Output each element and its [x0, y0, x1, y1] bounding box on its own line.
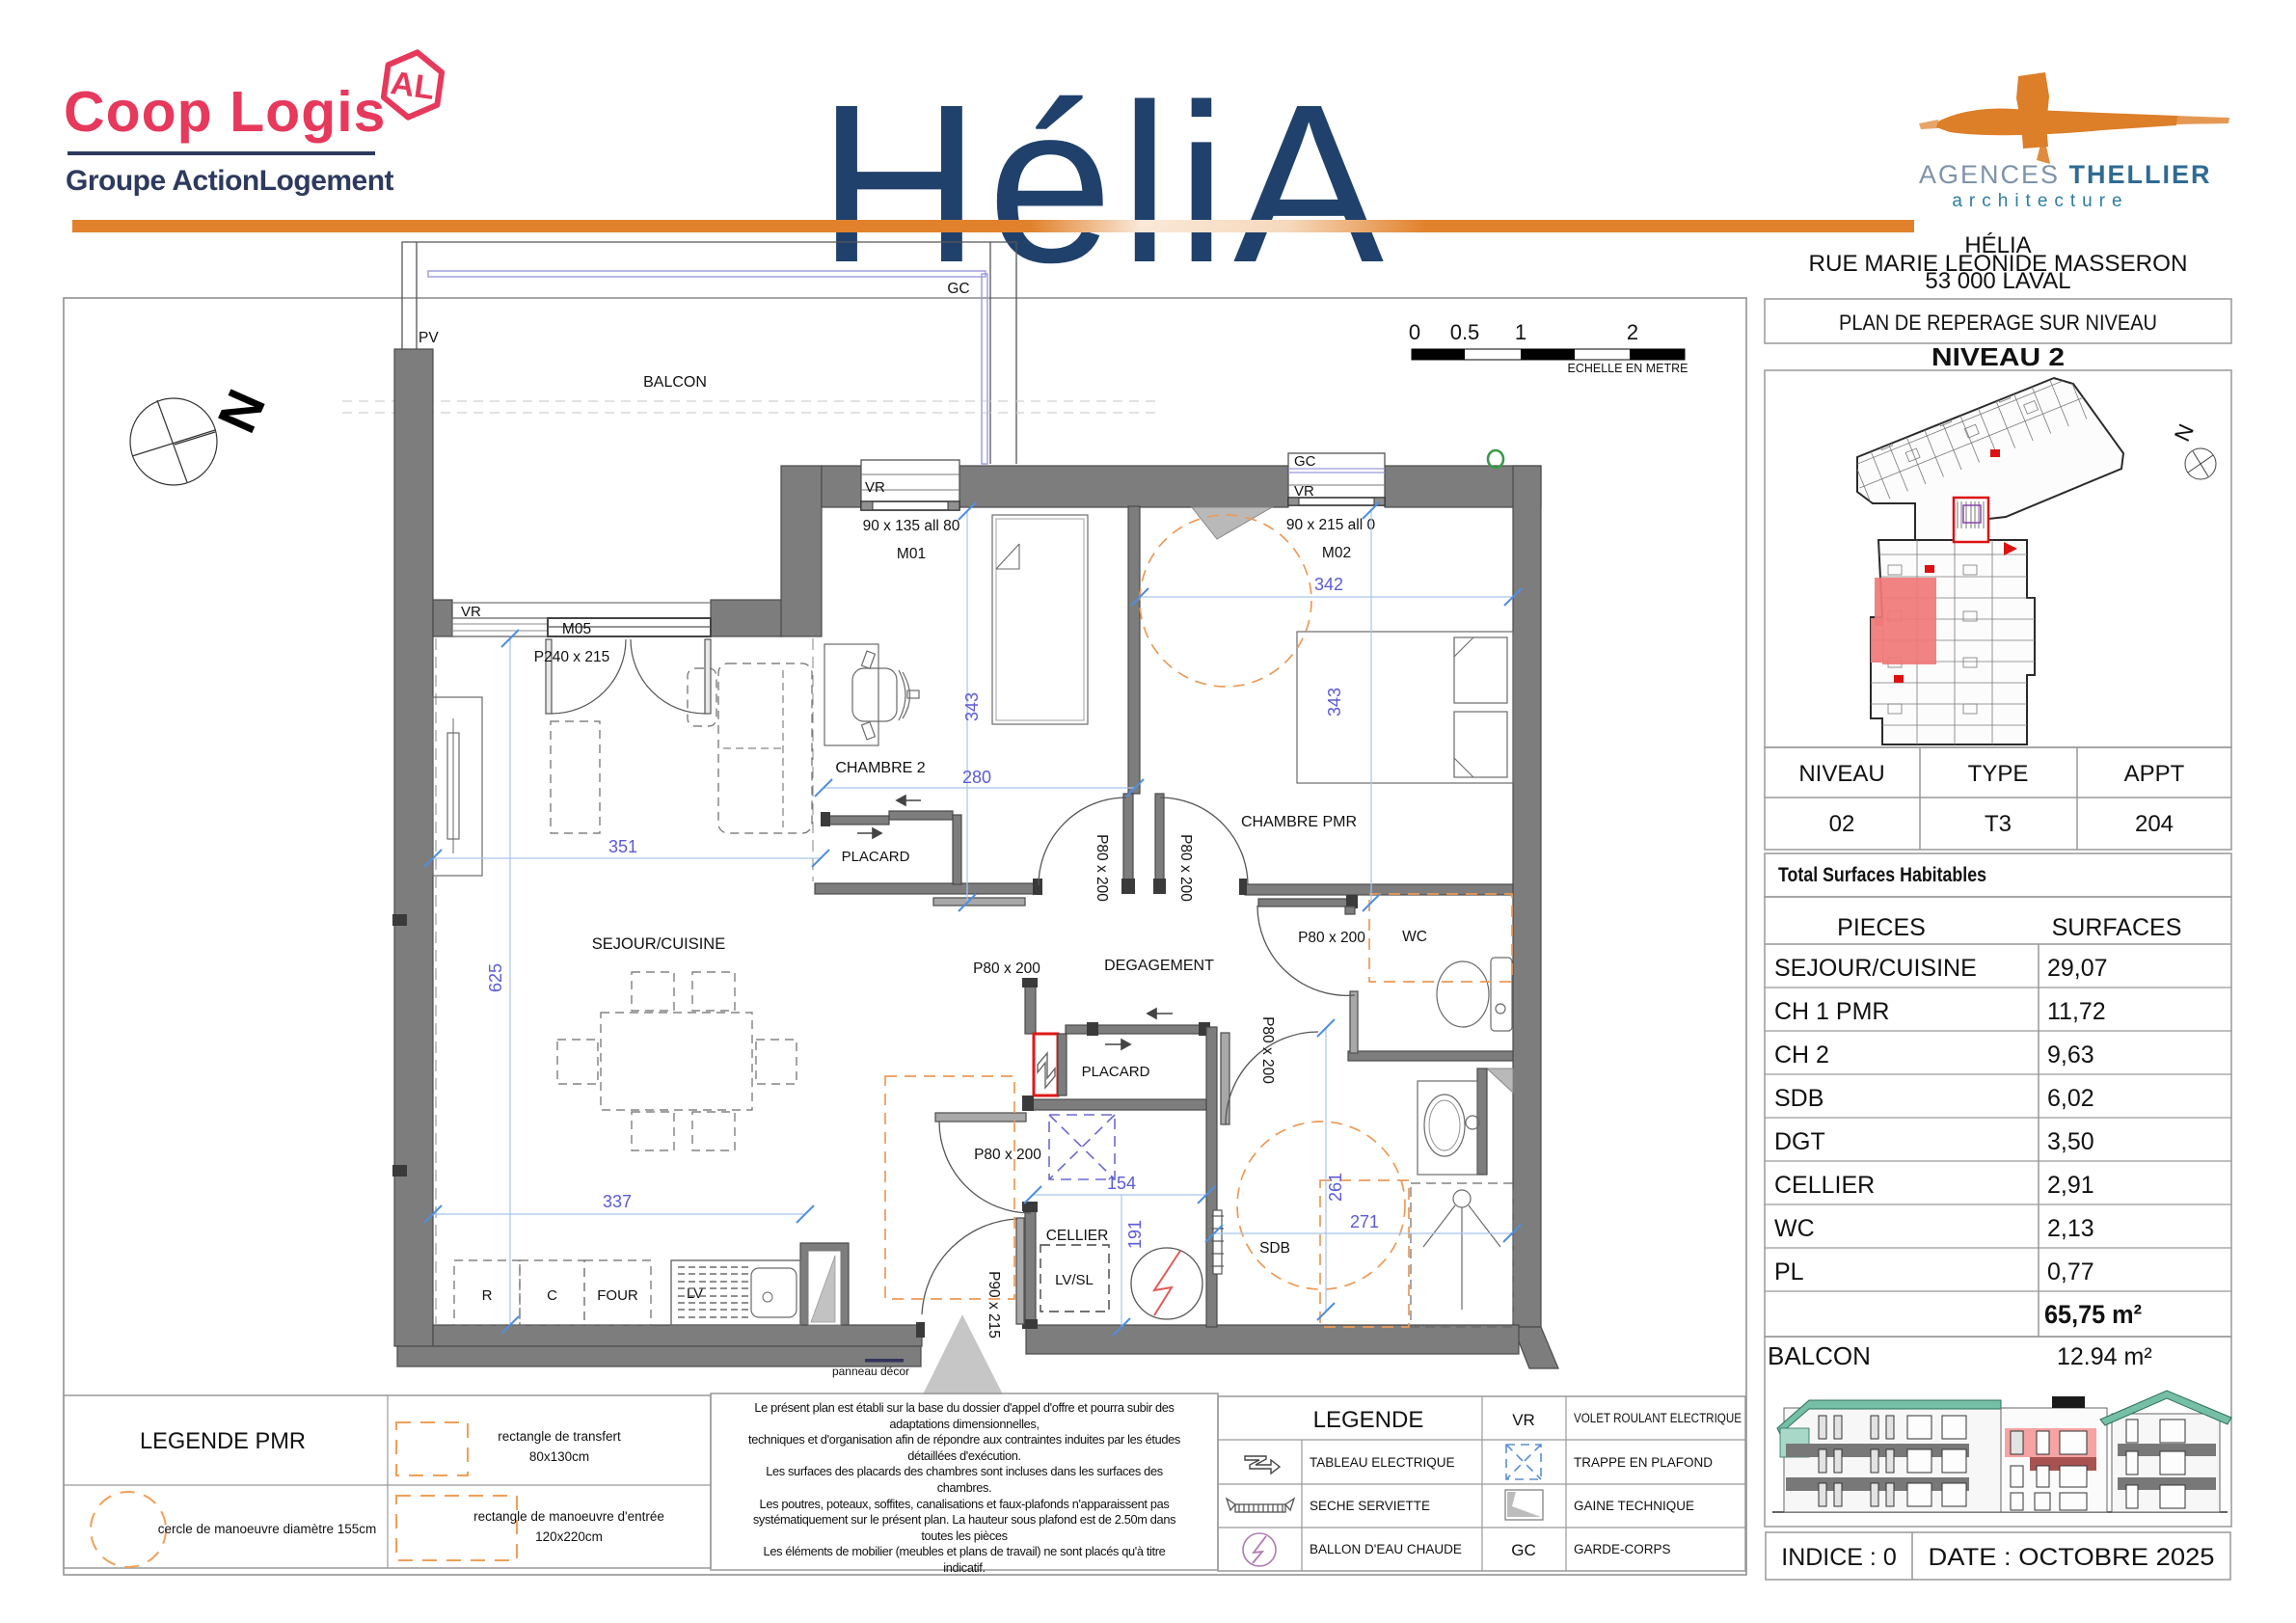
svg-text:CH 1 PMR: CH 1 PMR [1774, 998, 1889, 1025]
svg-text:PIECES: PIECES [1837, 914, 1926, 941]
svg-text:SECHE SERVIETTE: SECHE SERVIETTE [1310, 1499, 1430, 1513]
svg-text:CELLIER: CELLIER [1774, 1172, 1875, 1199]
svg-text:INDICE : 0: INDICE : 0 [1781, 1544, 1896, 1571]
svg-text:261: 261 [1326, 1173, 1345, 1202]
svg-text:ECHELLE EN METRE: ECHELLE EN METRE [1567, 362, 1688, 375]
svg-text:3,50: 3,50 [2047, 1128, 2094, 1155]
svg-text:P80 x 200: P80 x 200 [1094, 834, 1110, 902]
svg-text:SDB: SDB [1774, 1085, 1823, 1112]
svg-text:154: 154 [1107, 1174, 1136, 1193]
svg-text:HéliA: HéliA [818, 57, 1391, 310]
svg-text:0.5: 0.5 [1450, 320, 1480, 344]
svg-text:PLAN DE REPERAGE SUR NIVEAU: PLAN DE REPERAGE SUR NIVEAU [1839, 311, 2157, 335]
svg-text:P80 x 200: P80 x 200 [1298, 930, 1365, 946]
svg-text:1: 1 [1515, 320, 1526, 344]
svg-text:0,77: 0,77 [2047, 1258, 2094, 1285]
svg-text:Coop Logis: Coop Logis [64, 80, 386, 144]
svg-text:0: 0 [1409, 320, 1420, 344]
svg-text:VR: VR [865, 479, 885, 496]
svg-text:LEGENDE: LEGENDE [1313, 1407, 1424, 1433]
svg-text:GC: GC [947, 281, 969, 297]
svg-text:CHAMBRE 2: CHAMBRE 2 [835, 760, 925, 776]
svg-text:GC: GC [1294, 453, 1316, 470]
svg-text:détaillées d'exécution.: détaillées d'exécution. [907, 1448, 1020, 1463]
svg-text:C: C [547, 1287, 557, 1304]
svg-text:29,07: 29,07 [2047, 955, 2108, 982]
svg-text:FOUR: FOUR [597, 1287, 638, 1304]
svg-text:WC: WC [1774, 1215, 1815, 1242]
svg-text:chambres.: chambres. [937, 1480, 992, 1495]
svg-text:TABLEAU ELECTRIQUE: TABLEAU ELECTRIQUE [1310, 1455, 1455, 1470]
svg-text:53 000 LAVAL: 53 000 LAVAL [1925, 268, 2070, 294]
svg-text:TRAPPE EN PLAFOND: TRAPPE EN PLAFOND [1574, 1455, 1713, 1470]
svg-text:GC: GC [1511, 1541, 1536, 1559]
svg-text:rectangle de transfert: rectangle de transfert [498, 1429, 621, 1444]
svg-text:SEJOUR/CUISINE: SEJOUR/CUISINE [1774, 955, 1977, 982]
svg-text:342: 342 [1314, 575, 1343, 594]
svg-text:DGT: DGT [1774, 1128, 1825, 1155]
svg-text:techniques et d'organisation a: techniques et d'organisation afin de rép… [748, 1432, 1180, 1447]
svg-text:M02: M02 [1322, 545, 1351, 561]
svg-text:2: 2 [1627, 320, 1638, 344]
svg-text:CELLIER: CELLIER [1046, 1228, 1109, 1244]
svg-text:CH 2: CH 2 [1774, 1041, 1829, 1068]
svg-text:T3: T3 [1985, 811, 2012, 837]
svg-text:80x130cm: 80x130cm [529, 1449, 589, 1464]
svg-text:191: 191 [1125, 1220, 1145, 1249]
svg-text:2,13: 2,13 [2047, 1215, 2094, 1242]
svg-text:P240 x 215: P240 x 215 [534, 649, 609, 665]
svg-text:12.94 m²: 12.94 m² [2057, 1343, 2152, 1370]
svg-text:351: 351 [608, 837, 637, 856]
svg-text:P80 x 200: P80 x 200 [1177, 834, 1194, 902]
svg-text:panneau décor: panneau décor [832, 1365, 909, 1378]
svg-text:P90 x 215: P90 x 215 [986, 1271, 1002, 1339]
svg-text:P80 x 200: P80 x 200 [974, 1147, 1041, 1163]
svg-text:Groupe ActionLogement: Groupe ActionLogement [66, 165, 394, 197]
svg-text:M05: M05 [562, 621, 591, 637]
svg-text:337: 337 [603, 1192, 632, 1211]
svg-text:90 x 135 all 80: 90 x 135 all 80 [863, 518, 960, 534]
svg-text:AGENCES THELLIER: AGENCES THELLIER [1919, 160, 2212, 189]
svg-text:02: 02 [1829, 811, 1855, 837]
svg-text:VOLET ROULANT ELECTRIQUE: VOLET ROULANT ELECTRIQUE [1574, 1411, 1742, 1425]
svg-text:Total Surfaces Habitables: Total Surfaces Habitables [1778, 864, 1986, 886]
svg-text:PLACARD: PLACARD [1082, 1064, 1150, 1080]
svg-text:toutes les pièces: toutes les pièces [921, 1528, 1007, 1543]
svg-text:NIVEAU 2: NIVEAU 2 [1931, 342, 2065, 371]
svg-text:Les éléments de mobilier (meub: Les éléments de mobilier (meubles et pla… [764, 1544, 1166, 1558]
svg-text:PL: PL [1774, 1258, 1804, 1285]
svg-text:AL: AL [389, 65, 437, 107]
svg-text:M01: M01 [897, 546, 926, 562]
svg-text:625: 625 [486, 963, 505, 992]
svg-text:P80 x 200: P80 x 200 [1259, 1016, 1276, 1084]
svg-text:VR: VR [1294, 483, 1314, 500]
svg-text:adaptations dimensionnelles,: adaptations dimensionnelles, [889, 1417, 1039, 1431]
svg-text:SURFACES: SURFACES [2052, 914, 2182, 941]
svg-text:PV: PV [419, 330, 439, 346]
svg-text:cercle de manoeuvre diamètre 1: cercle de manoeuvre diamètre 155cm [158, 1522, 377, 1536]
svg-text:90 x 215 all 0: 90 x 215 all 0 [1286, 517, 1376, 533]
svg-text:rectangle de manoeuvre d'entré: rectangle de manoeuvre d'entrée [473, 1509, 664, 1524]
svg-text:2,91: 2,91 [2047, 1172, 2094, 1199]
svg-text:Le présent plan est établi sur: Le présent plan est établi sur la base d… [754, 1400, 1174, 1415]
svg-text:65,75 m²: 65,75 m² [2044, 1300, 2142, 1329]
svg-text:204: 204 [2135, 811, 2174, 837]
svg-text:BALCON: BALCON [1768, 1341, 1871, 1370]
svg-text:P80 x 200: P80 x 200 [973, 960, 1040, 977]
svg-text:GARDE-CORPS: GARDE-CORPS [1574, 1542, 1671, 1556]
svg-text:VR: VR [461, 604, 481, 620]
svg-text:GAINE TECHNIQUE: GAINE TECHNIQUE [1574, 1499, 1694, 1513]
svg-text:TYPE: TYPE [1968, 761, 2029, 787]
svg-text:343: 343 [962, 692, 982, 721]
svg-text:DATE : OCTOBRE 2025: DATE : OCTOBRE 2025 [1929, 1544, 2215, 1571]
svg-text:6,02: 6,02 [2047, 1085, 2094, 1112]
svg-text:280: 280 [962, 768, 991, 787]
svg-text:DEGAGEMENT: DEGAGEMENT [1104, 958, 1214, 974]
svg-text:LV/SL: LV/SL [1055, 1272, 1094, 1288]
svg-text:120x220cm: 120x220cm [535, 1529, 603, 1544]
svg-text:11,72: 11,72 [2047, 998, 2106, 1025]
svg-text:271: 271 [1350, 1212, 1379, 1231]
svg-text:WC: WC [1402, 929, 1427, 945]
svg-text:VR: VR [1512, 1411, 1535, 1429]
svg-text:9,63: 9,63 [2047, 1041, 2094, 1068]
svg-text:SDB: SDB [1259, 1240, 1290, 1257]
svg-text:systématiquement sur le présen: systématiquement sur le présent plan. La… [753, 1512, 1175, 1527]
svg-text:LEGENDE PMR: LEGENDE PMR [140, 1428, 306, 1454]
svg-text:NIVEAU: NIVEAU [1798, 761, 1884, 787]
svg-text:BALLON D'EAU CHAUDE: BALLON D'EAU CHAUDE [1310, 1542, 1462, 1556]
svg-text:CHAMBRE PMR: CHAMBRE PMR [1241, 814, 1357, 830]
svg-text:Les surfaces des placards des: Les surfaces des placards des chambres s… [766, 1464, 1163, 1478]
svg-text:PLACARD: PLACARD [842, 849, 910, 865]
svg-text:indicatif.: indicatif. [943, 1560, 985, 1575]
svg-text:Les poutres, poteaux, soffites: Les poutres, poteaux, soffites, canalisa… [760, 1497, 1170, 1511]
svg-text:BALCON: BALCON [643, 374, 707, 391]
svg-text:343: 343 [1325, 688, 1344, 717]
svg-text:architecture: architecture [1952, 191, 2128, 211]
svg-text:R: R [482, 1287, 493, 1304]
svg-text:APPT: APPT [2124, 761, 2185, 787]
svg-text:SEJOUR/CUISINE: SEJOUR/CUISINE [592, 935, 725, 953]
